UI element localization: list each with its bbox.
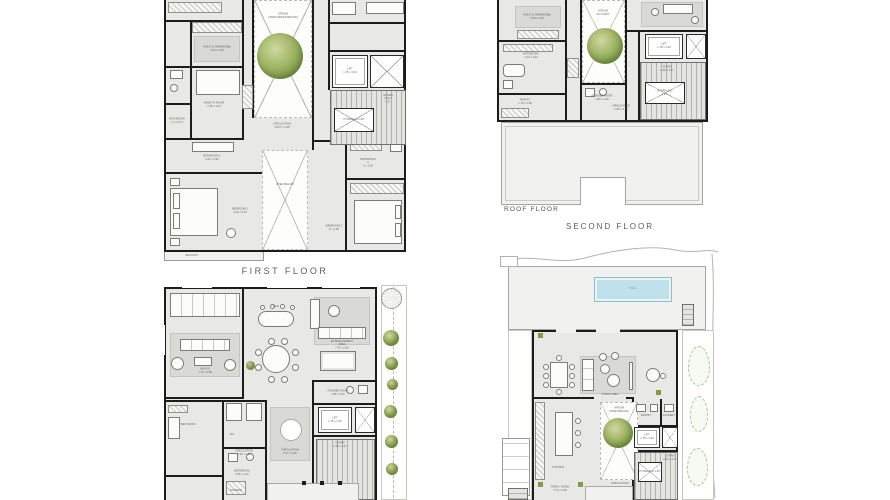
armchair <box>611 352 619 360</box>
sofa <box>318 327 366 339</box>
wall <box>534 397 594 399</box>
floor-plan-ground-floor[interactable]: MAJLIS 7.71 x 4.98 BAR ENTERTAINMENT ARE… <box>162 285 408 500</box>
pantry-shelves <box>501 108 529 118</box>
console <box>629 362 633 390</box>
entrance-porch <box>267 483 359 500</box>
dining-table <box>550 362 568 388</box>
coffee-table <box>607 374 620 387</box>
stool <box>575 418 581 424</box>
laundry-chute <box>567 58 579 78</box>
wall <box>164 400 267 402</box>
caption-second-floor: SECOND FLOOR <box>500 222 720 231</box>
chair <box>556 389 562 395</box>
toilet <box>585 88 595 97</box>
armchair <box>646 368 660 382</box>
planter <box>538 333 543 338</box>
bench <box>168 405 188 413</box>
chair <box>543 364 549 370</box>
appliance <box>650 404 658 412</box>
wall <box>328 22 406 24</box>
tree-sketch <box>690 396 708 432</box>
hydraulic-lift <box>334 108 374 132</box>
chair <box>691 16 699 24</box>
window <box>267 285 307 288</box>
terrace-steps <box>682 304 694 326</box>
column <box>320 481 324 485</box>
planter-box <box>500 256 518 267</box>
pillow <box>395 205 401 219</box>
tree <box>257 33 303 79</box>
chair <box>569 364 575 370</box>
pillow <box>173 213 180 229</box>
lift-shaft <box>686 34 706 59</box>
column <box>338 481 342 485</box>
armchair <box>599 353 607 361</box>
wall <box>190 20 192 138</box>
lift-shaft <box>355 407 375 433</box>
armchair <box>328 305 340 317</box>
wall <box>497 40 565 42</box>
wardrobe-shelves <box>517 30 559 39</box>
wall <box>222 402 224 500</box>
rug <box>194 36 240 62</box>
kitchen-island <box>555 412 573 456</box>
wall <box>242 287 244 399</box>
balcony <box>164 252 264 261</box>
shower <box>332 2 356 15</box>
wall <box>312 403 377 405</box>
chair <box>281 338 288 345</box>
toilet <box>503 80 513 89</box>
caption-first-floor: FIRST FLOOR <box>162 266 408 276</box>
dining-table <box>262 345 290 373</box>
tree <box>603 418 633 448</box>
lift <box>645 34 683 59</box>
roof-notch <box>580 177 626 205</box>
wall <box>164 103 192 105</box>
plant <box>246 361 255 370</box>
stool <box>290 305 295 310</box>
bathtub <box>192 142 234 152</box>
floor-plans-page: WALK IN WARDROBE 4.03 x 3.30 NANNY'S ROO… <box>0 0 890 500</box>
door-opening <box>596 329 620 333</box>
pouf <box>226 228 236 238</box>
appliance <box>664 404 674 412</box>
bar-table <box>258 311 294 327</box>
round-rug <box>280 419 302 441</box>
tree-sketch <box>688 346 710 386</box>
planter <box>656 390 661 395</box>
lift <box>634 427 660 448</box>
pillow <box>395 223 401 237</box>
sofa <box>582 359 594 391</box>
nightstand <box>170 238 180 246</box>
wall <box>328 50 406 52</box>
wall <box>242 0 244 140</box>
wall <box>345 140 347 252</box>
wall <box>164 475 222 477</box>
chair <box>292 349 299 356</box>
chair <box>651 8 659 16</box>
wall <box>164 66 242 68</box>
wall <box>312 380 314 500</box>
caption-roof-floor: ROOF FLOOR <box>504 206 559 213</box>
side-table <box>660 373 666 379</box>
chair <box>556 355 562 361</box>
bathtub <box>168 417 180 439</box>
stool <box>270 304 275 309</box>
pool <box>594 277 672 302</box>
sink <box>599 88 607 96</box>
lift <box>318 407 352 433</box>
toilet <box>358 385 368 394</box>
stool <box>575 430 581 436</box>
parasol <box>381 288 402 309</box>
window <box>182 285 212 288</box>
kitchen-counter <box>535 402 545 480</box>
tree <box>387 379 398 390</box>
chair <box>569 382 575 388</box>
bathtub <box>366 2 404 14</box>
chair <box>255 364 262 371</box>
desk <box>663 4 693 14</box>
planter <box>538 482 543 487</box>
window <box>162 325 165 355</box>
column <box>302 481 306 485</box>
terrace-opening <box>585 486 633 500</box>
lift-shaft <box>370 55 404 88</box>
armchair <box>224 359 236 371</box>
sink <box>170 84 178 92</box>
wall <box>582 83 625 85</box>
tree <box>384 405 397 418</box>
floor-plan-second-floor[interactable]: POOL LIVING AREA ATRIUM (OPEN BELOW) KIT… <box>500 240 720 500</box>
billiards-table <box>320 351 356 371</box>
rug <box>515 6 561 28</box>
sofa <box>310 299 320 329</box>
tree-sketch <box>687 448 708 486</box>
wall <box>312 0 314 150</box>
chair <box>292 364 299 371</box>
bathtub <box>503 64 525 77</box>
hydraulic-lift <box>638 462 662 482</box>
tree <box>385 357 398 370</box>
shower <box>226 481 246 495</box>
wall <box>164 397 244 399</box>
wardrobe-shelves <box>350 183 404 194</box>
wall <box>328 0 330 90</box>
tree <box>587 28 623 64</box>
hydraulic-lift <box>645 82 685 104</box>
tree <box>386 463 398 475</box>
chair <box>281 376 288 383</box>
closet <box>168 2 222 13</box>
laundry-chute <box>242 85 253 109</box>
wall <box>312 435 377 437</box>
chair <box>268 338 275 345</box>
floor-plan-roof-floor[interactable]: WALK IN WARDROBE 3.95 x 3.30 BATHROOM 4.… <box>495 0 710 206</box>
nightstand <box>170 178 180 186</box>
armchair <box>171 357 184 370</box>
stool <box>280 304 285 309</box>
lift <box>332 55 368 88</box>
wall <box>164 138 242 140</box>
wall <box>660 399 662 427</box>
coffee-table <box>194 357 212 366</box>
sink <box>346 386 354 394</box>
wall <box>222 447 265 449</box>
sofa <box>180 339 230 351</box>
stool <box>575 442 581 448</box>
closet <box>246 403 262 421</box>
floor-plan-first-floor[interactable]: WALK IN WARDROBE 4.03 x 3.30 NANNY'S ROO… <box>162 0 408 262</box>
chair <box>543 373 549 379</box>
pillow <box>173 193 180 209</box>
wall <box>625 0 627 120</box>
exterior-steps <box>508 488 528 500</box>
toilet <box>170 70 183 79</box>
tree <box>385 435 398 448</box>
window <box>322 285 360 288</box>
chair <box>268 376 275 383</box>
wall <box>164 172 262 174</box>
door-opening <box>556 329 576 333</box>
tree <box>383 330 399 346</box>
wall <box>345 178 406 180</box>
stool <box>260 305 265 310</box>
coffee-table <box>600 364 610 374</box>
chair <box>569 373 575 379</box>
sofa <box>170 293 240 317</box>
open-below-void <box>262 150 308 250</box>
bed <box>196 70 240 95</box>
wall <box>312 380 377 382</box>
shower <box>226 403 242 421</box>
sink <box>246 453 254 461</box>
wall <box>497 93 565 95</box>
planter <box>578 482 583 487</box>
wardrobe-shelves <box>192 22 242 33</box>
chair <box>255 349 262 356</box>
appliance <box>636 404 646 412</box>
lift-shaft <box>662 427 678 448</box>
chair <box>543 382 549 388</box>
vanity <box>503 44 553 52</box>
toilet <box>228 453 238 462</box>
